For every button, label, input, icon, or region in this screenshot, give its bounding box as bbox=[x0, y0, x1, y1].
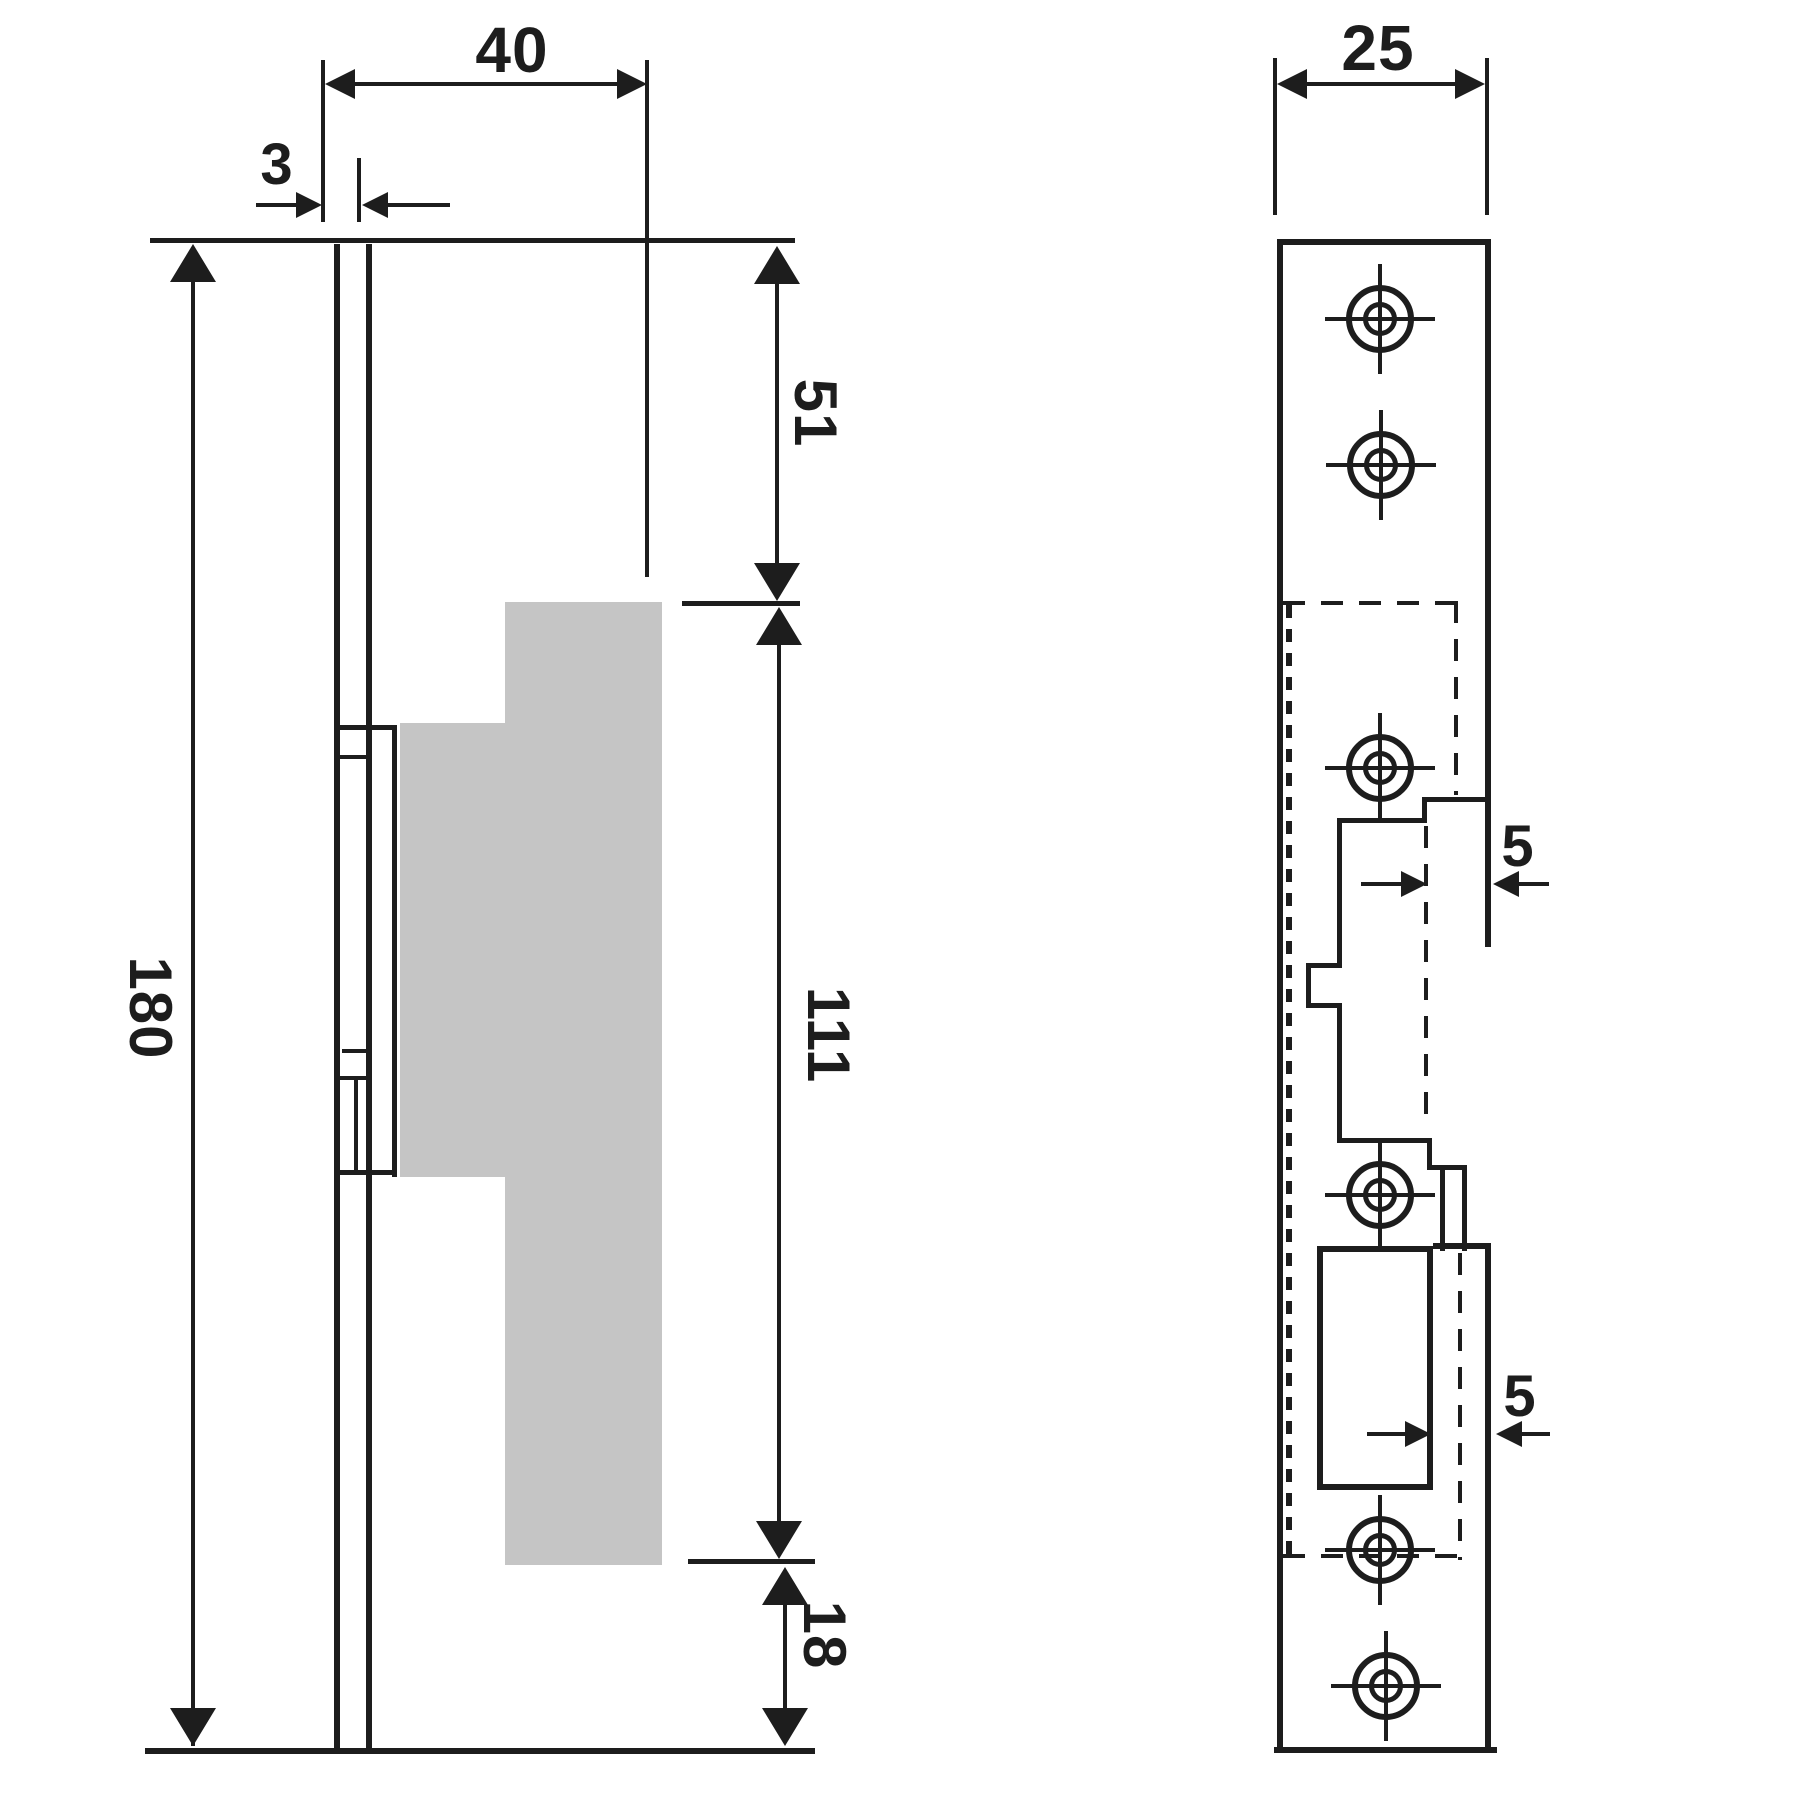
hole-inner-circle bbox=[1369, 1669, 1403, 1703]
dim-5-upper-label: 5 bbox=[1493, 818, 1543, 876]
dim-5-lower-arrow-right-icon bbox=[1405, 1421, 1431, 1447]
hidden-body-top-dashed bbox=[1283, 601, 1458, 605]
cavity-left-wall-lower bbox=[1337, 1003, 1342, 1143]
dim-25-arrow-left-icon bbox=[1277, 69, 1307, 99]
hidden-body-mid-dashed bbox=[1424, 826, 1428, 1114]
cavity-notch-left bbox=[1306, 963, 1311, 1008]
hidden-body-right-dashed-upper bbox=[1454, 601, 1458, 795]
dim-5-lower-label: 5 bbox=[1495, 1368, 1545, 1426]
dim-5-upper-shaft-right bbox=[1517, 882, 1549, 886]
dim-5-upper-arrow-right-icon bbox=[1401, 871, 1427, 897]
keeper-front-outline bbox=[1317, 1246, 1433, 1490]
faceplate-bottom-edge bbox=[1274, 1747, 1497, 1753]
faceplate-right-edge-upper bbox=[1485, 239, 1491, 947]
hole-inner-circle bbox=[1364, 448, 1398, 482]
dim-5-lower-shaft-left bbox=[1367, 1432, 1407, 1436]
cavity-notch-top bbox=[1306, 963, 1342, 968]
strike-lip-right-edge bbox=[1485, 1245, 1491, 1750]
dim-25-arrow-right-icon bbox=[1455, 69, 1485, 99]
latch-tab-right bbox=[1462, 1165, 1467, 1251]
hole-inner-circle bbox=[1363, 302, 1397, 336]
screw-hole-3 bbox=[1325, 713, 1435, 823]
cavity-left-wall-upper bbox=[1337, 818, 1342, 968]
front-view: 25 bbox=[0, 0, 1800, 1800]
faceplate-left-edge bbox=[1277, 239, 1283, 1753]
faceplate-top-edge bbox=[1277, 239, 1491, 245]
dim-25-ext-right bbox=[1485, 58, 1489, 215]
screw-hole-5 bbox=[1325, 1495, 1435, 1605]
hole-inner-circle bbox=[1363, 751, 1397, 785]
dim-5-upper-shaft-left bbox=[1361, 882, 1403, 886]
hole-inner-circle bbox=[1363, 1178, 1397, 1212]
latch-tab-left bbox=[1440, 1165, 1445, 1251]
screw-hole-6 bbox=[1331, 1631, 1441, 1741]
strike-plate-drawing: 180 40 3 51 111 18 bbox=[0, 0, 1800, 1800]
dim-5-lower-shaft-right bbox=[1520, 1432, 1550, 1436]
hole-inner-circle bbox=[1363, 1533, 1397, 1567]
screw-hole-4 bbox=[1325, 1140, 1435, 1250]
hidden-body-right-dashed-lower bbox=[1458, 1253, 1462, 1560]
dim-25-label: 25 bbox=[1318, 16, 1438, 80]
screw-hole-2 bbox=[1326, 410, 1436, 520]
screw-hole-1 bbox=[1325, 264, 1435, 374]
hidden-body-left-hatch bbox=[1286, 605, 1292, 1560]
